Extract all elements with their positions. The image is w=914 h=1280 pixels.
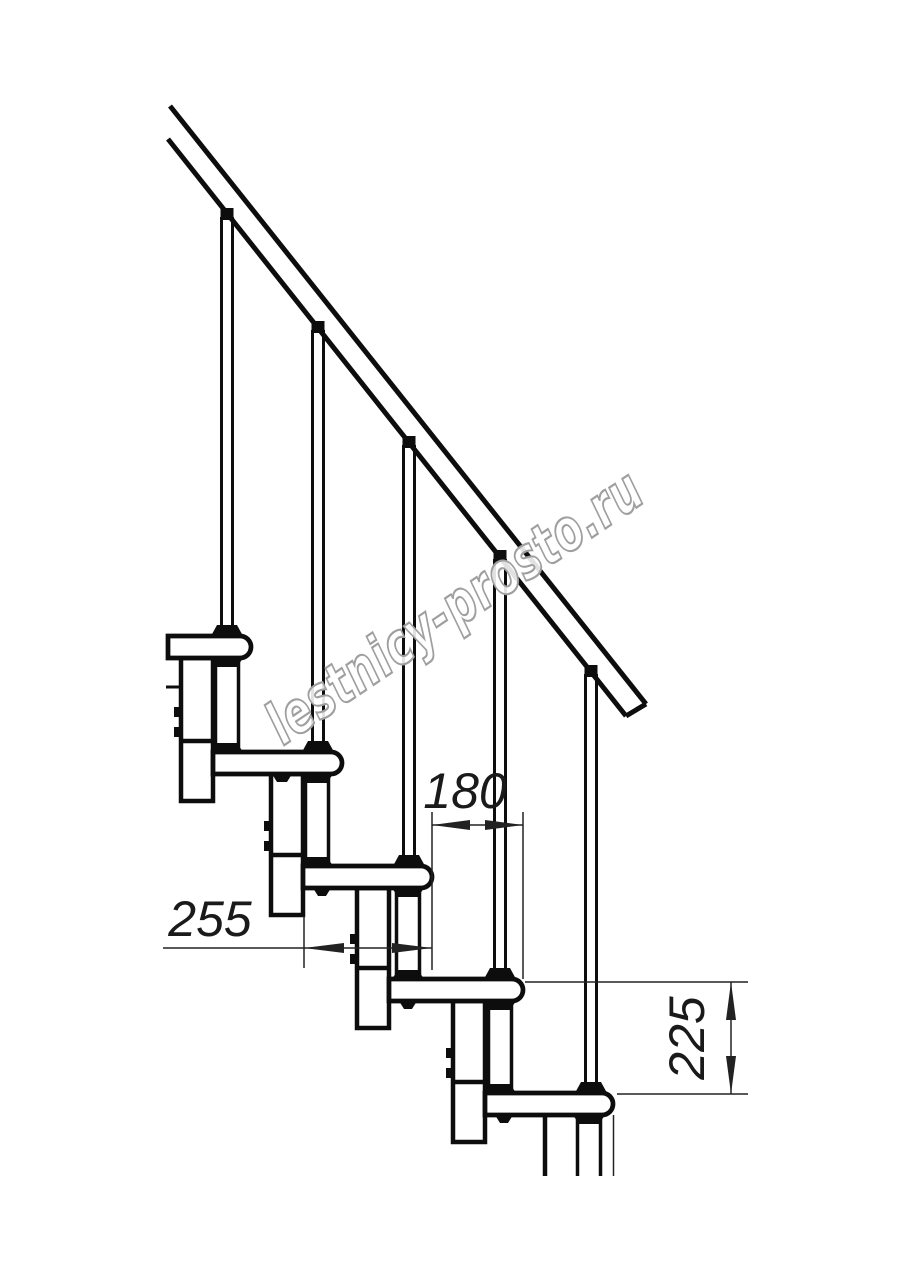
tread [303,866,432,888]
support-post [211,658,243,752]
arrow-left-icon [304,943,344,953]
bolt-icon [446,1068,455,1078]
dimension-tread-depth-label: 255 [167,891,252,947]
stringer-box [446,1001,485,1142]
tread-nut [313,888,331,896]
tread [213,752,342,774]
bolt-icon [264,821,273,831]
bolt-icon [350,954,359,964]
arrow-down-icon [726,1056,736,1094]
bolt-icon [350,934,359,944]
tread [485,1093,613,1115]
dimension-step-rise: 225 [525,982,748,1094]
dimension-step-run: 180 [423,763,523,979]
arrow-up-icon [726,982,736,1020]
stair-drawing-page: 180 255 225 lestnicy-prosto.ru [0,0,914,1280]
support-post [484,1001,516,1093]
arrow-left-icon [432,820,470,830]
bolt-icon [174,727,183,737]
baluster [575,665,607,1093]
modular-staircase-side-view: 180 255 225 lestnicy-prosto.ru [0,0,914,1280]
bolt-icon [446,1048,455,1058]
support-post [301,774,333,866]
dimension-step-run-label: 180 [423,763,507,819]
tread [389,979,523,1001]
dimension-step-rise-label: 225 [659,996,715,1081]
stringer-box [264,774,303,915]
bolt-icon [264,841,273,851]
arrow-right-icon [392,943,432,953]
tread-nut [399,1001,417,1009]
bolt-icon [174,707,183,717]
baluster [211,208,243,636]
tread [168,636,251,658]
support-post [392,888,424,979]
handrail-end-cap [626,704,646,716]
stringer-box [350,888,389,1028]
treads [168,636,613,1123]
support-post [573,1115,605,1176]
tread-nut [495,1115,513,1123]
stringer-box [166,658,213,801]
